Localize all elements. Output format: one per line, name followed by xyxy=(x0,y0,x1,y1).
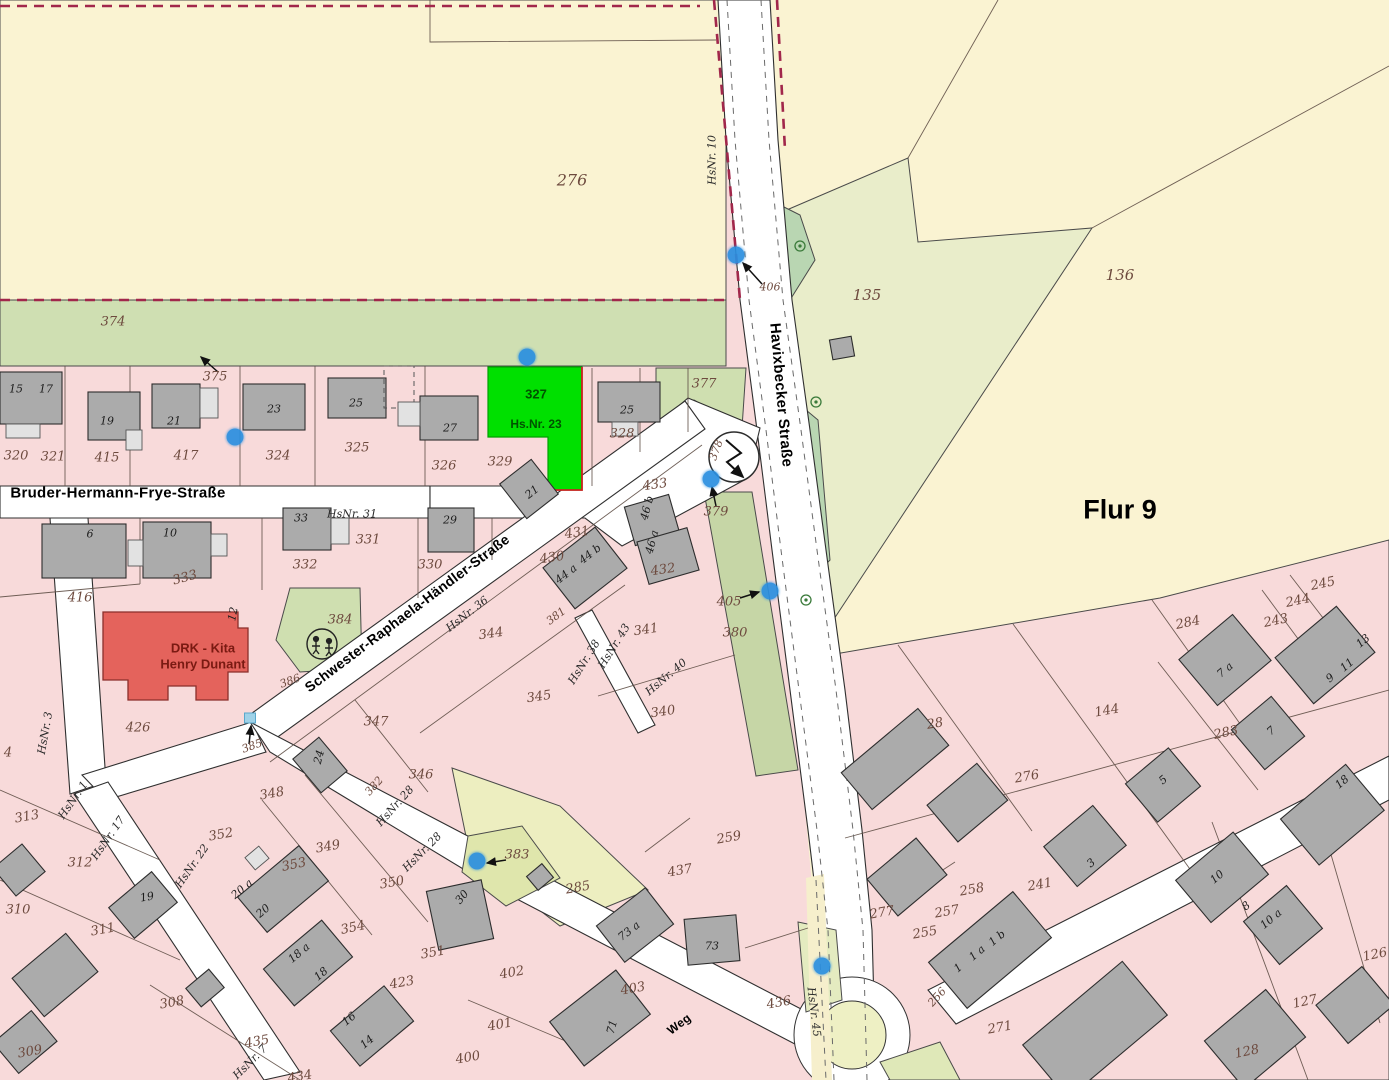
point-marker-icon[interactable] xyxy=(469,853,486,870)
cadastral-map[interactable]: Bruder-Hermann-Frye-StraßeSchwester-Raph… xyxy=(0,0,1389,1080)
square-marker-icon[interactable] xyxy=(244,713,256,724)
map-geometry xyxy=(0,0,1389,1080)
field-parcel-276 xyxy=(0,0,726,300)
point-marker-icon[interactable] xyxy=(227,429,244,446)
point-marker-icon[interactable] xyxy=(703,471,720,488)
point-marker-icon[interactable] xyxy=(728,247,745,264)
green-strip-374 xyxy=(0,300,726,366)
point-marker-icon[interactable] xyxy=(762,583,779,600)
point-marker-icon[interactable] xyxy=(519,349,536,366)
street-bruder xyxy=(0,486,430,518)
point-marker-icon[interactable] xyxy=(814,958,831,975)
